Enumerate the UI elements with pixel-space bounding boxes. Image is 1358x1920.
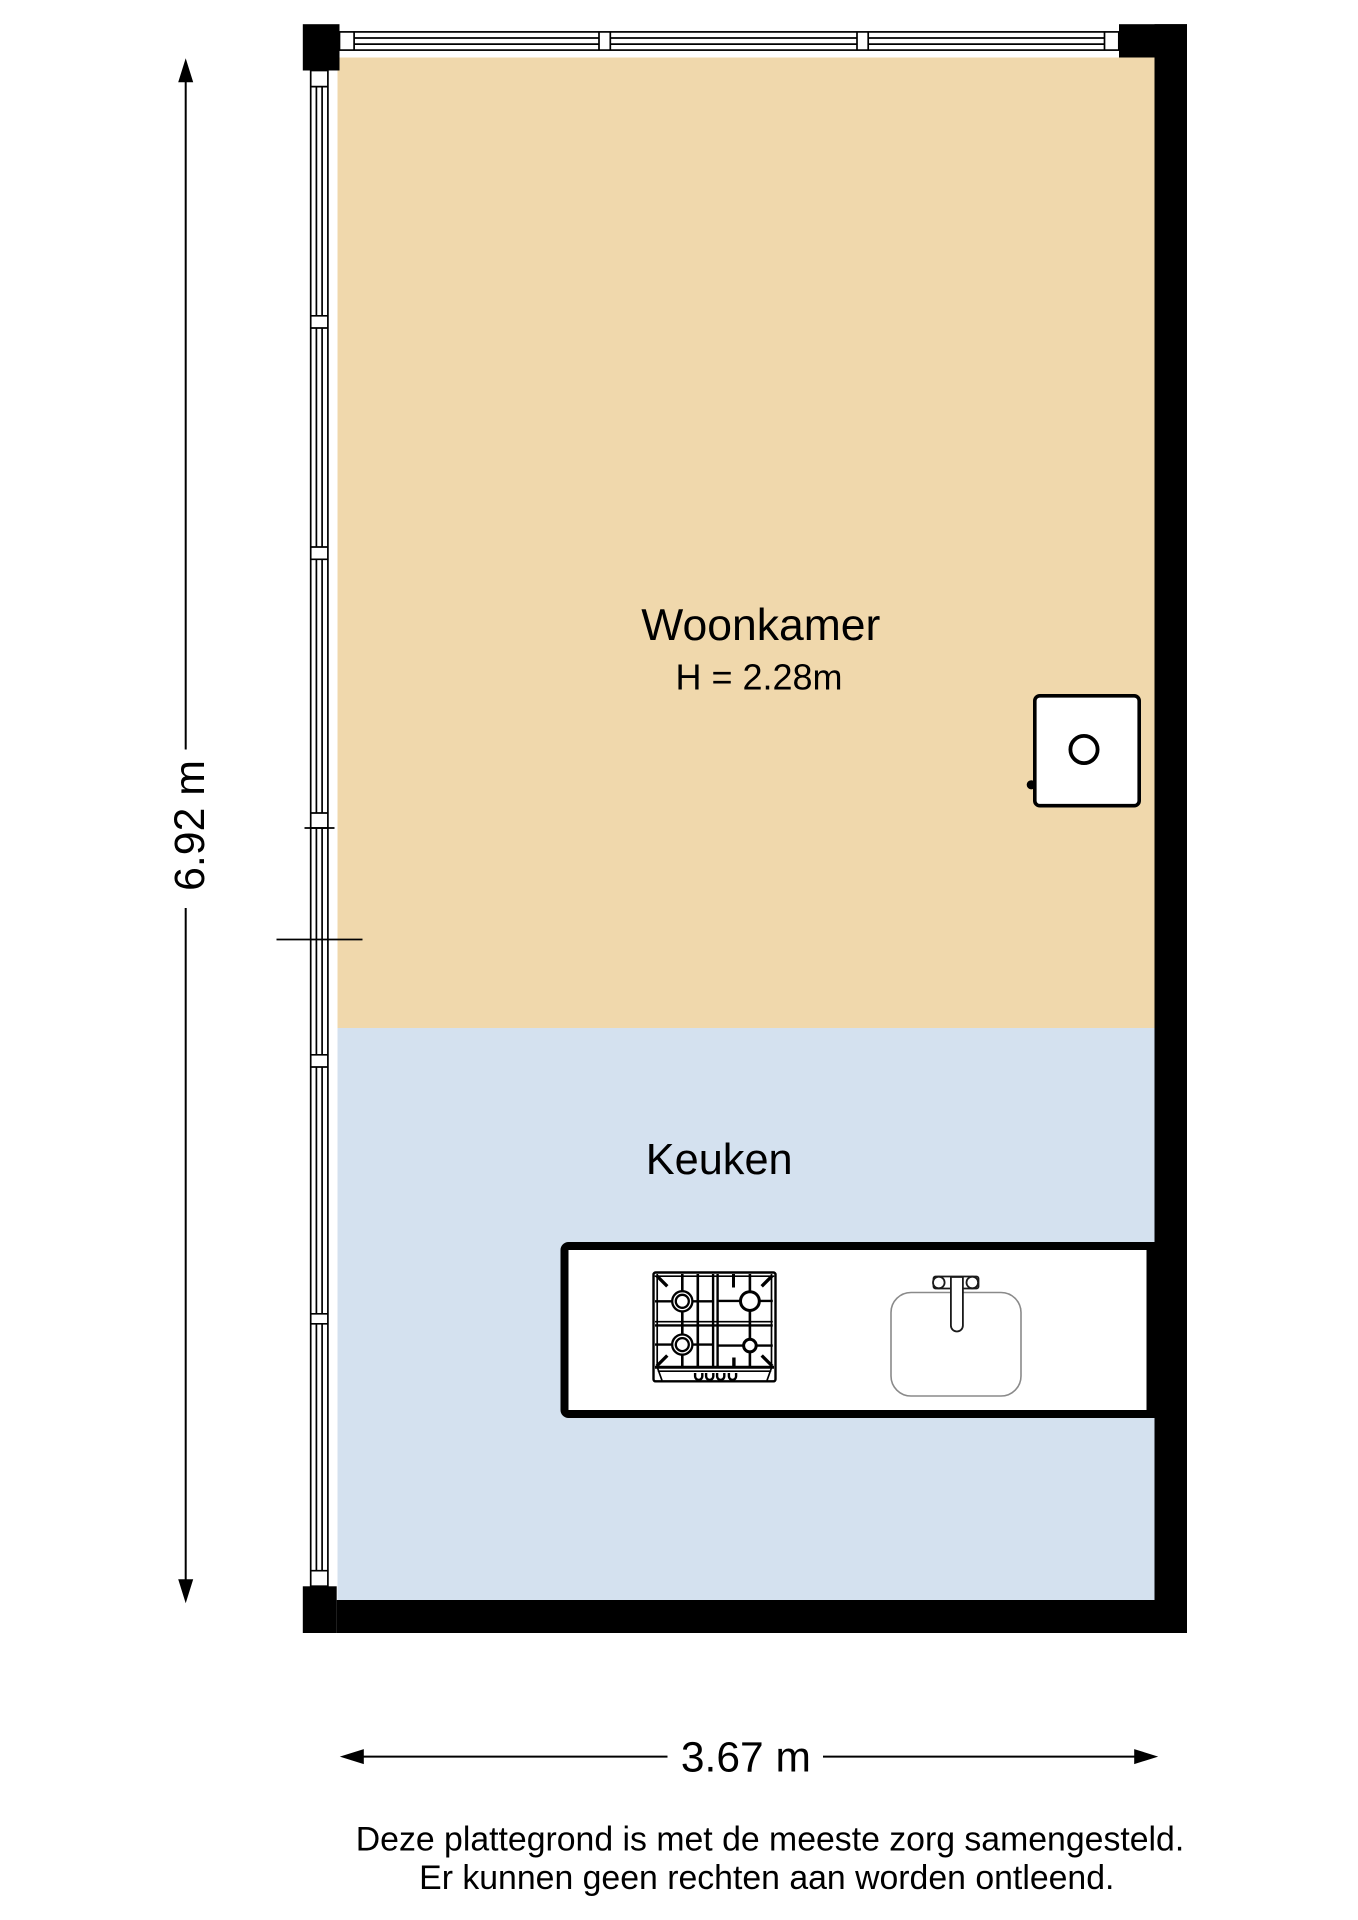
svg-text:3.67 m: 3.67 m <box>681 1734 811 1781</box>
svg-text:Keuken: Keuken <box>646 1136 793 1184</box>
svg-text:Deze plattegrond is met de mee: Deze plattegrond is met de meeste zorg s… <box>356 1820 1184 1858</box>
svg-text:Woonkamer: Woonkamer <box>641 601 880 650</box>
svg-text:Er kunnen geen rechten aan wor: Er kunnen geen rechten aan worden ontlee… <box>419 1859 1114 1897</box>
svg-text:H = 2.28m: H = 2.28m <box>675 657 842 698</box>
svg-text:6.92 m: 6.92 m <box>166 760 214 891</box>
